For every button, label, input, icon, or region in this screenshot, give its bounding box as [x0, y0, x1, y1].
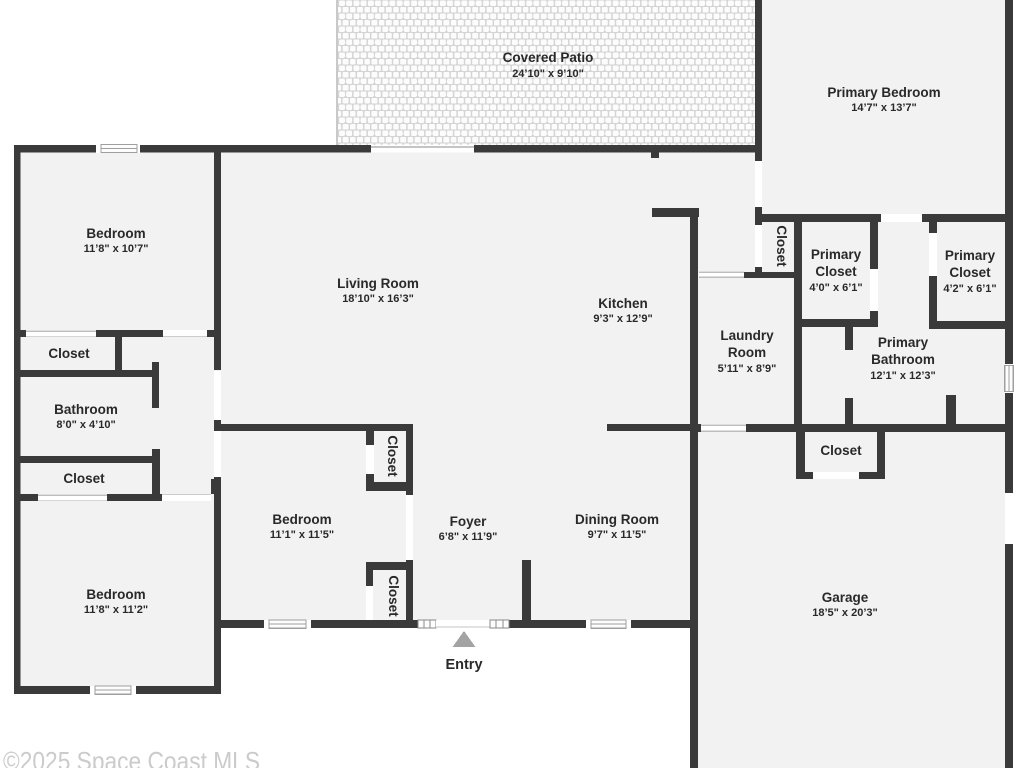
svg-text:Room: Room — [728, 345, 766, 360]
svg-text:24’10" x 9’10": 24’10" x 9’10" — [512, 68, 584, 80]
svg-text:Garage: Garage — [822, 590, 869, 605]
svg-text:11’1" x 11’5": 11’1" x 11’5" — [270, 529, 334, 541]
svg-text:11’8" x 11’2": 11’8" x 11’2" — [84, 604, 148, 616]
svg-text:Closet: Closet — [820, 443, 862, 458]
svg-text:©2025 Space Coast MLS: ©2025 Space Coast MLS — [3, 746, 260, 768]
svg-text:Primary Bedroom: Primary Bedroom — [827, 85, 940, 100]
svg-text:Closet: Closet — [949, 265, 991, 280]
svg-text:Primary: Primary — [878, 335, 929, 350]
svg-text:9’7" x 11’5": 9’7" x 11’5" — [588, 529, 647, 541]
svg-text:Closet: Closet — [815, 264, 857, 279]
svg-text:Foyer: Foyer — [450, 514, 488, 529]
svg-text:Dining Room: Dining Room — [575, 512, 659, 527]
svg-text:4’2" x 6’1": 4’2" x 6’1" — [943, 283, 996, 295]
svg-text:Entry: Entry — [445, 657, 482, 673]
svg-text:Bedroom: Bedroom — [272, 512, 331, 527]
svg-text:12’1" x 12’3": 12’1" x 12’3" — [870, 370, 935, 382]
svg-text:Covered Patio: Covered Patio — [503, 50, 594, 65]
svg-text:Closet: Closet — [774, 225, 789, 267]
svg-text:18’10" x 16’3": 18’10" x 16’3" — [342, 293, 414, 305]
svg-text:Bathroom: Bathroom — [871, 352, 935, 367]
svg-text:Closet: Closet — [386, 575, 401, 617]
svg-text:18’5" x 20’3": 18’5" x 20’3" — [812, 607, 877, 619]
svg-text:Closet: Closet — [385, 435, 400, 477]
svg-text:Bedroom: Bedroom — [86, 226, 145, 241]
svg-text:5’11" x 8’9": 5’11" x 8’9" — [718, 363, 777, 375]
svg-text:14’7" x 13’7": 14’7" x 13’7" — [851, 102, 916, 114]
svg-text:9’3" x 12’9": 9’3" x 12’9" — [593, 313, 652, 325]
svg-text:Living Room: Living Room — [337, 276, 419, 291]
svg-text:Closet: Closet — [63, 471, 105, 486]
svg-text:8’0" x 4’10": 8’0" x 4’10" — [56, 419, 115, 431]
svg-text:Primary: Primary — [945, 248, 996, 263]
svg-text:Closet: Closet — [48, 346, 90, 361]
svg-text:Kitchen: Kitchen — [598, 296, 648, 311]
svg-text:Primary: Primary — [811, 247, 862, 262]
svg-text:Bedroom: Bedroom — [86, 587, 145, 602]
svg-text:Bathroom: Bathroom — [54, 402, 118, 417]
svg-text:4’0" x 6’1": 4’0" x 6’1" — [809, 282, 862, 294]
svg-text:Laundry: Laundry — [720, 328, 774, 343]
svg-text:6’8" x 11’9": 6’8" x 11’9" — [439, 531, 498, 543]
svg-text:11’8" x 10’7": 11’8" x 10’7" — [84, 243, 149, 255]
